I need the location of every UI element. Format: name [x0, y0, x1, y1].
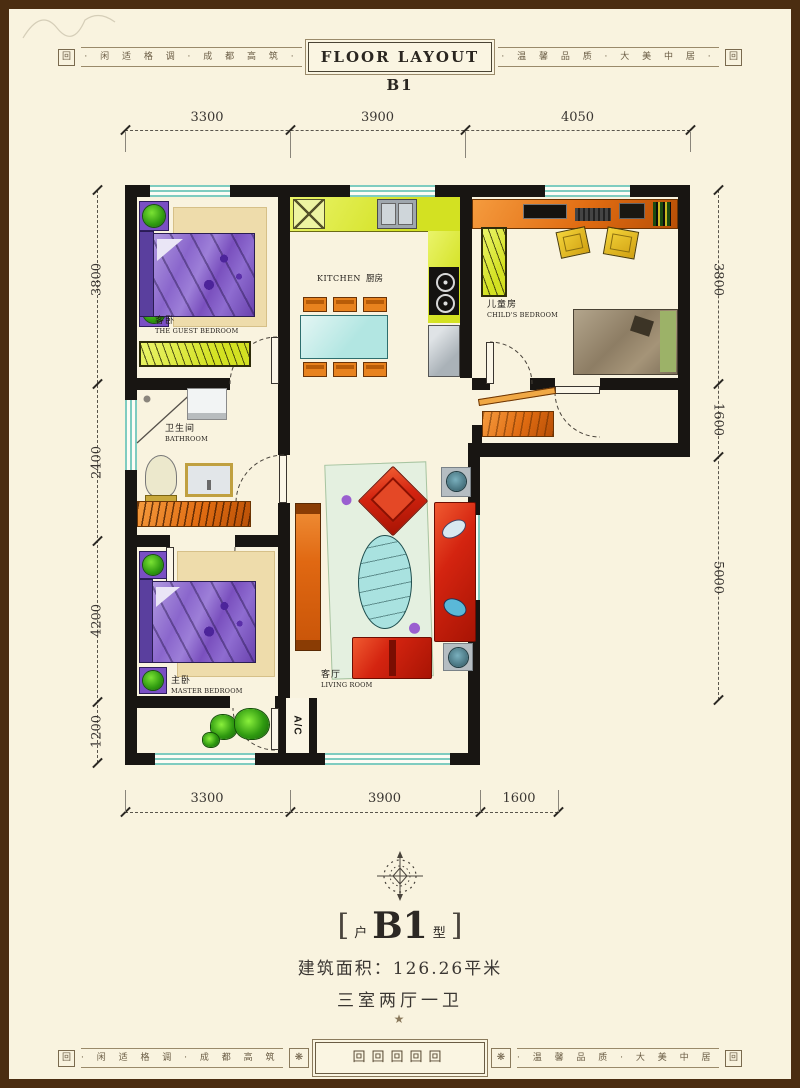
balcony-plant-icon — [203, 733, 219, 747]
child-desk — [472, 199, 678, 229]
dim-bottom-1: 3300 — [162, 791, 252, 806]
bracket-left: [ — [338, 911, 350, 941]
door-arc-bath — [236, 455, 284, 503]
dim-right-2: 1600 — [711, 398, 726, 442]
guest-bed — [153, 233, 255, 317]
rooms-desc-text: 三室两厅一卫 — [250, 986, 550, 1011]
living-label-zh: 客厅 — [321, 669, 411, 681]
footer-left-text: · 闲 适 格 调 · 成 都 高 筑 · — [81, 1048, 283, 1068]
washing-machine — [187, 388, 227, 420]
computer-monitor-icon — [619, 203, 645, 219]
rug-dot — [341, 495, 351, 505]
master-label-zh: 主卧 — [171, 675, 281, 687]
dining-chair — [303, 297, 327, 312]
bathroom-vanity — [185, 463, 233, 497]
kitchen-hood-icon — [293, 199, 325, 229]
unit-suffix: 型 — [433, 912, 446, 941]
band-corner-ornament: 回 — [58, 49, 75, 66]
sink-basin — [381, 203, 396, 225]
guest-nightstand-1 — [139, 201, 169, 231]
door-leaf-guest — [271, 337, 279, 384]
compass-rose-icon — [374, 850, 426, 902]
kitchen-sink — [377, 199, 417, 229]
living-room-label: 客厅 LIVING ROOM — [321, 669, 411, 690]
dim-bottom-3: 1600 — [479, 791, 559, 806]
tv-cabinet — [295, 503, 321, 651]
dim-ext — [125, 790, 126, 812]
pillow — [630, 315, 654, 336]
bathroom-label: 卫生间 BATHROOM — [165, 423, 260, 444]
dim-bottom-2: 3900 — [337, 791, 432, 806]
kitchen-label: KITCHEN 厨房 — [317, 265, 437, 287]
bed-pattern — [154, 234, 254, 316]
dim-top-1: 3300 — [162, 110, 252, 125]
guest-wardrobe — [139, 341, 251, 367]
dim-left-4: 1200 — [90, 710, 105, 754]
plant-icon — [143, 205, 165, 227]
band-right-text: · 温 馨 品 质 · 大 美 中 居 · — [498, 47, 719, 67]
bathroom-cabinet — [137, 501, 251, 527]
kitchen-fridge — [428, 325, 460, 377]
page-title: FLOOR LAYOUT B1 — [308, 42, 492, 72]
coffee-table — [358, 535, 412, 629]
dim-right-3: 5000 — [711, 556, 726, 600]
dim-line-bottom — [125, 812, 558, 813]
star-ornament: ★ — [250, 1012, 550, 1026]
dim-ext — [125, 132, 126, 152]
side-table — [441, 467, 471, 497]
unit-prefix: 户 — [354, 912, 367, 941]
master-nightstand-1 — [139, 551, 167, 579]
floor-plan-page: 回 · 闲 适 格 调 · 成 都 高 筑 · FLOOR LAYOUT B1 … — [0, 0, 800, 1088]
dim-left-2: 2400 — [90, 441, 105, 485]
washer-panel — [188, 413, 226, 419]
dining-chair — [363, 297, 387, 312]
door-arc-entry — [555, 392, 600, 437]
book-stack-icon — [653, 202, 671, 226]
faucet-icon — [207, 480, 211, 490]
sofa-pillow — [441, 595, 470, 621]
shower-head-icon — [144, 396, 151, 403]
bath-label-en: BATHROOM — [165, 435, 260, 444]
dim-right-1: 3800 — [711, 258, 726, 302]
dim-top-3: 4050 — [530, 110, 625, 125]
toilet — [145, 455, 177, 497]
child-label-en: CHILD'S BEDROOM — [487, 311, 597, 320]
kitchen-label-zh: 厨房 — [366, 274, 383, 284]
potted-plant-icon — [449, 648, 468, 667]
child-wardrobe — [481, 227, 507, 297]
area-text: 建筑面积：126.26平米 — [250, 954, 550, 979]
plant-icon — [143, 555, 163, 575]
dim-line-top — [125, 130, 690, 131]
sofa-pillow — [439, 516, 470, 543]
flower-ornament: ❋ — [491, 1048, 511, 1068]
dim-left-3: 4200 — [90, 599, 105, 643]
door-leaf-balcony — [271, 708, 279, 750]
band-corner-ornament: 回 — [58, 1050, 75, 1067]
door-leaf-bath — [279, 455, 287, 503]
dim-ext — [690, 132, 691, 152]
dim-ext — [290, 790, 291, 812]
door-leaf-entry — [555, 386, 600, 394]
entry-shoe-bench — [482, 411, 554, 437]
master-room-label: 主卧 MASTER BEDROOM — [171, 675, 281, 696]
dining-chair — [333, 297, 357, 312]
master-nightstand-2 — [139, 667, 167, 694]
tv-cabinet-end — [296, 640, 320, 650]
tv-cabinet-end — [296, 504, 320, 514]
balcony-plant-icon — [235, 709, 269, 739]
unit-name: B1 — [372, 908, 427, 944]
child-bed-blanket — [660, 311, 676, 372]
dining-chair — [333, 362, 357, 377]
ac-slot: A/C — [286, 698, 309, 753]
master-label-en: MASTER BEDROOM — [171, 687, 281, 696]
armchair-cushion — [370, 477, 415, 522]
computer-monitor-icon — [523, 204, 567, 219]
door-arc-child — [490, 342, 532, 384]
band-left-text: · 闲 适 格 调 · 成 都 高 筑 · — [81, 47, 302, 67]
keyboard-icon — [575, 208, 611, 221]
sink-basin — [398, 203, 413, 225]
kitchen-label-en: KITCHEN — [317, 274, 361, 283]
guest-label-zh: 客卧 — [155, 315, 267, 327]
guest-label-en: THE GUEST BEDROOM — [155, 327, 267, 336]
dim-left-1: 3800 — [90, 258, 105, 302]
header-band: 回 · 闲 适 格 调 · 成 都 高 筑 · FLOOR LAYOUT B1 … — [58, 42, 742, 72]
guest-bed-headboard — [139, 231, 154, 317]
footer-right-text: · 温 馨 品 质 · 大 美 中 居 · — [517, 1048, 719, 1068]
band-corner-ornament: 回 — [725, 49, 742, 66]
dining-chair — [303, 362, 327, 377]
desk-chair — [603, 226, 639, 259]
dining-chair — [363, 362, 387, 377]
potted-plant-icon — [447, 472, 466, 491]
guest-room-label: 客卧 THE GUEST BEDROOM — [155, 315, 267, 336]
door-leaf-child — [486, 342, 494, 384]
ac-label: A/C — [292, 715, 303, 735]
master-bed — [152, 581, 256, 663]
dim-top-2: 3900 — [330, 110, 425, 125]
bed-pattern — [153, 582, 255, 662]
footer-center-ornament: 回回回回回 — [315, 1042, 485, 1074]
band-corner-ornament: 回 — [725, 1050, 742, 1067]
living-label-en: LIVING ROOM — [321, 681, 411, 690]
footer-band: 回 · 闲 适 格 调 · 成 都 高 筑 · ❋ 回回回回回 ❋ · 温 馨 … — [58, 1042, 742, 1074]
floor-plan: 客卧 THE GUEST BEDROOM KITCHEN 厨房 — [125, 185, 690, 765]
burner-icon — [436, 273, 455, 292]
dining-table — [300, 315, 388, 359]
side-table — [443, 643, 473, 671]
bath-label-zh: 卫生间 — [165, 423, 260, 435]
plant-icon — [143, 671, 163, 690]
bracket-right: ] — [451, 911, 463, 941]
burner-icon — [436, 294, 455, 313]
child-label-zh: 儿童房 — [487, 299, 597, 311]
child-room-label: 儿童房 CHILD'S BEDROOM — [487, 299, 597, 320]
dim-ext — [290, 132, 291, 158]
rug-dot — [409, 623, 420, 634]
unit-title: [ 户 B1 型 ] — [250, 904, 550, 948]
flower-ornament: ❋ — [289, 1048, 309, 1068]
living-sofa-right — [434, 502, 476, 642]
master-bed-headboard — [139, 579, 153, 663]
dim-ext — [465, 132, 466, 158]
